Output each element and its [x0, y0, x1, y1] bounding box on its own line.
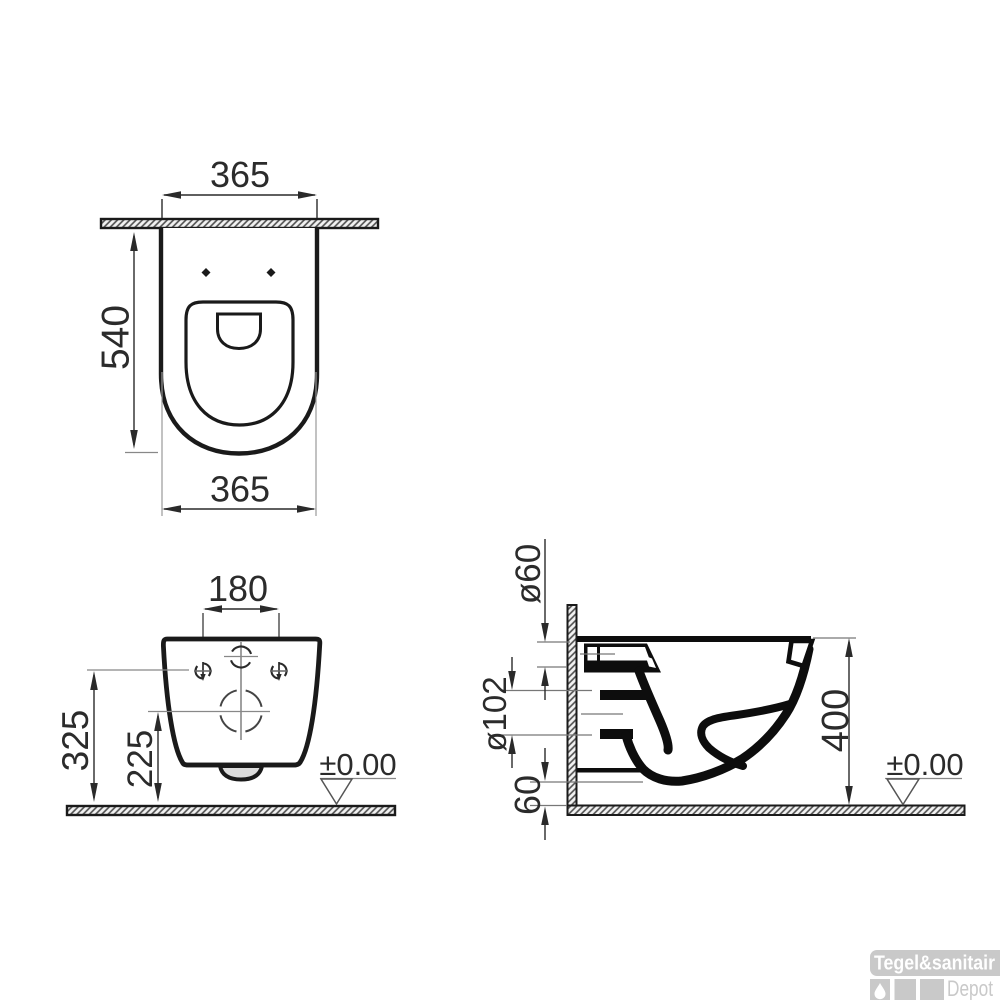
svg-text:365: 365	[210, 469, 270, 510]
svg-text:±0.00: ±0.00	[886, 747, 963, 782]
svg-text:ø102: ø102	[476, 676, 513, 751]
svg-text:325: 325	[55, 710, 96, 772]
svg-text:400: 400	[815, 689, 857, 752]
svg-text:540: 540	[95, 305, 138, 370]
svg-text:Depot: Depot	[947, 976, 993, 1000]
svg-text:ø60: ø60	[509, 544, 548, 604]
svg-text:225: 225	[121, 730, 160, 788]
svg-text:60: 60	[507, 775, 548, 815]
svg-text:365: 365	[210, 154, 270, 195]
svg-text:Tegel&sanitair: Tegel&sanitair	[874, 953, 995, 975]
svg-text:180: 180	[208, 568, 268, 609]
svg-text:±0.00: ±0.00	[319, 747, 396, 782]
